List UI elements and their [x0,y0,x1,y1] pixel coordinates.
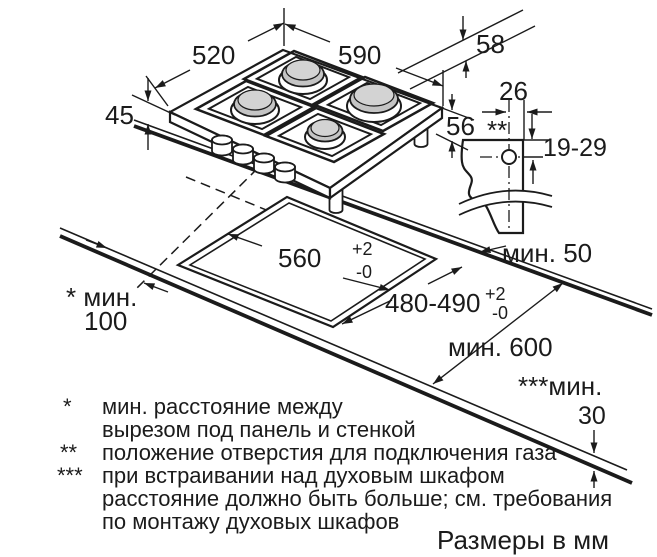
dim-cutout-width-sup: +2 [352,239,373,259]
dim-cutout-depth: 480-490 [385,288,480,318]
dim-min-side-value: 100 [84,306,127,336]
footnote-symbol: *** [57,463,83,488]
dim-depth-below: 56 [446,111,475,141]
knob-icon [275,163,295,183]
dim-gas-depth: 19-29 [543,134,607,162]
footnote-symbol: * [63,394,72,419]
knob-icon [254,154,274,174]
dim-cutout-width-sub: -0 [356,262,372,282]
dim-min-below-label: ***мин. [518,371,602,401]
footnote-text: мин. расстояние между [102,394,343,419]
knob-icon [233,145,253,165]
dim-cutout-width: 560 [278,243,321,273]
footnote-symbol: ** [60,440,78,465]
footnote-text: по монтажу духовых шкафов [102,509,399,534]
gas-hole [502,150,516,164]
dim-height-above: 45 [105,100,134,130]
units-note: Размеры в мм [437,525,609,555]
dim-rear-offset: 58 [476,29,505,59]
dim-cutout-depth-sub: -0 [492,303,508,323]
gas-hole-marker: ** [487,115,507,145]
footnote-text: вырезом под панель и стенкой [102,417,416,442]
dim-gas-offset: 26 [499,76,528,106]
footnotes: * мин. расстояние между вырезом под пане… [57,394,612,534]
dim-min-rear: мин. 50 [502,238,592,268]
dim-cutout-depth-sup: +2 [485,284,506,304]
dim-hob-length: 590 [338,40,381,70]
footnote-text: положение отверстия для подключения газа [102,440,557,465]
burner-right [347,84,401,122]
footnote-text: расстояние должно быть больше; см. требо… [102,486,612,511]
installation-diagram-page: 520 590 58 45 56 26 ** 19-29 560 +2 -0 4… [0,0,657,557]
dim-min-worktop: мин. 600 [448,332,553,362]
burner-front [305,120,345,150]
footnote-text: при встраивании над духовым шкафом [102,463,505,488]
installation-diagram: 520 590 58 45 56 26 ** 19-29 560 +2 -0 4… [0,0,657,557]
knob-icon [212,136,232,156]
dim-hob-width: 520 [192,40,235,70]
dim-min-below-value: 30 [578,402,606,430]
